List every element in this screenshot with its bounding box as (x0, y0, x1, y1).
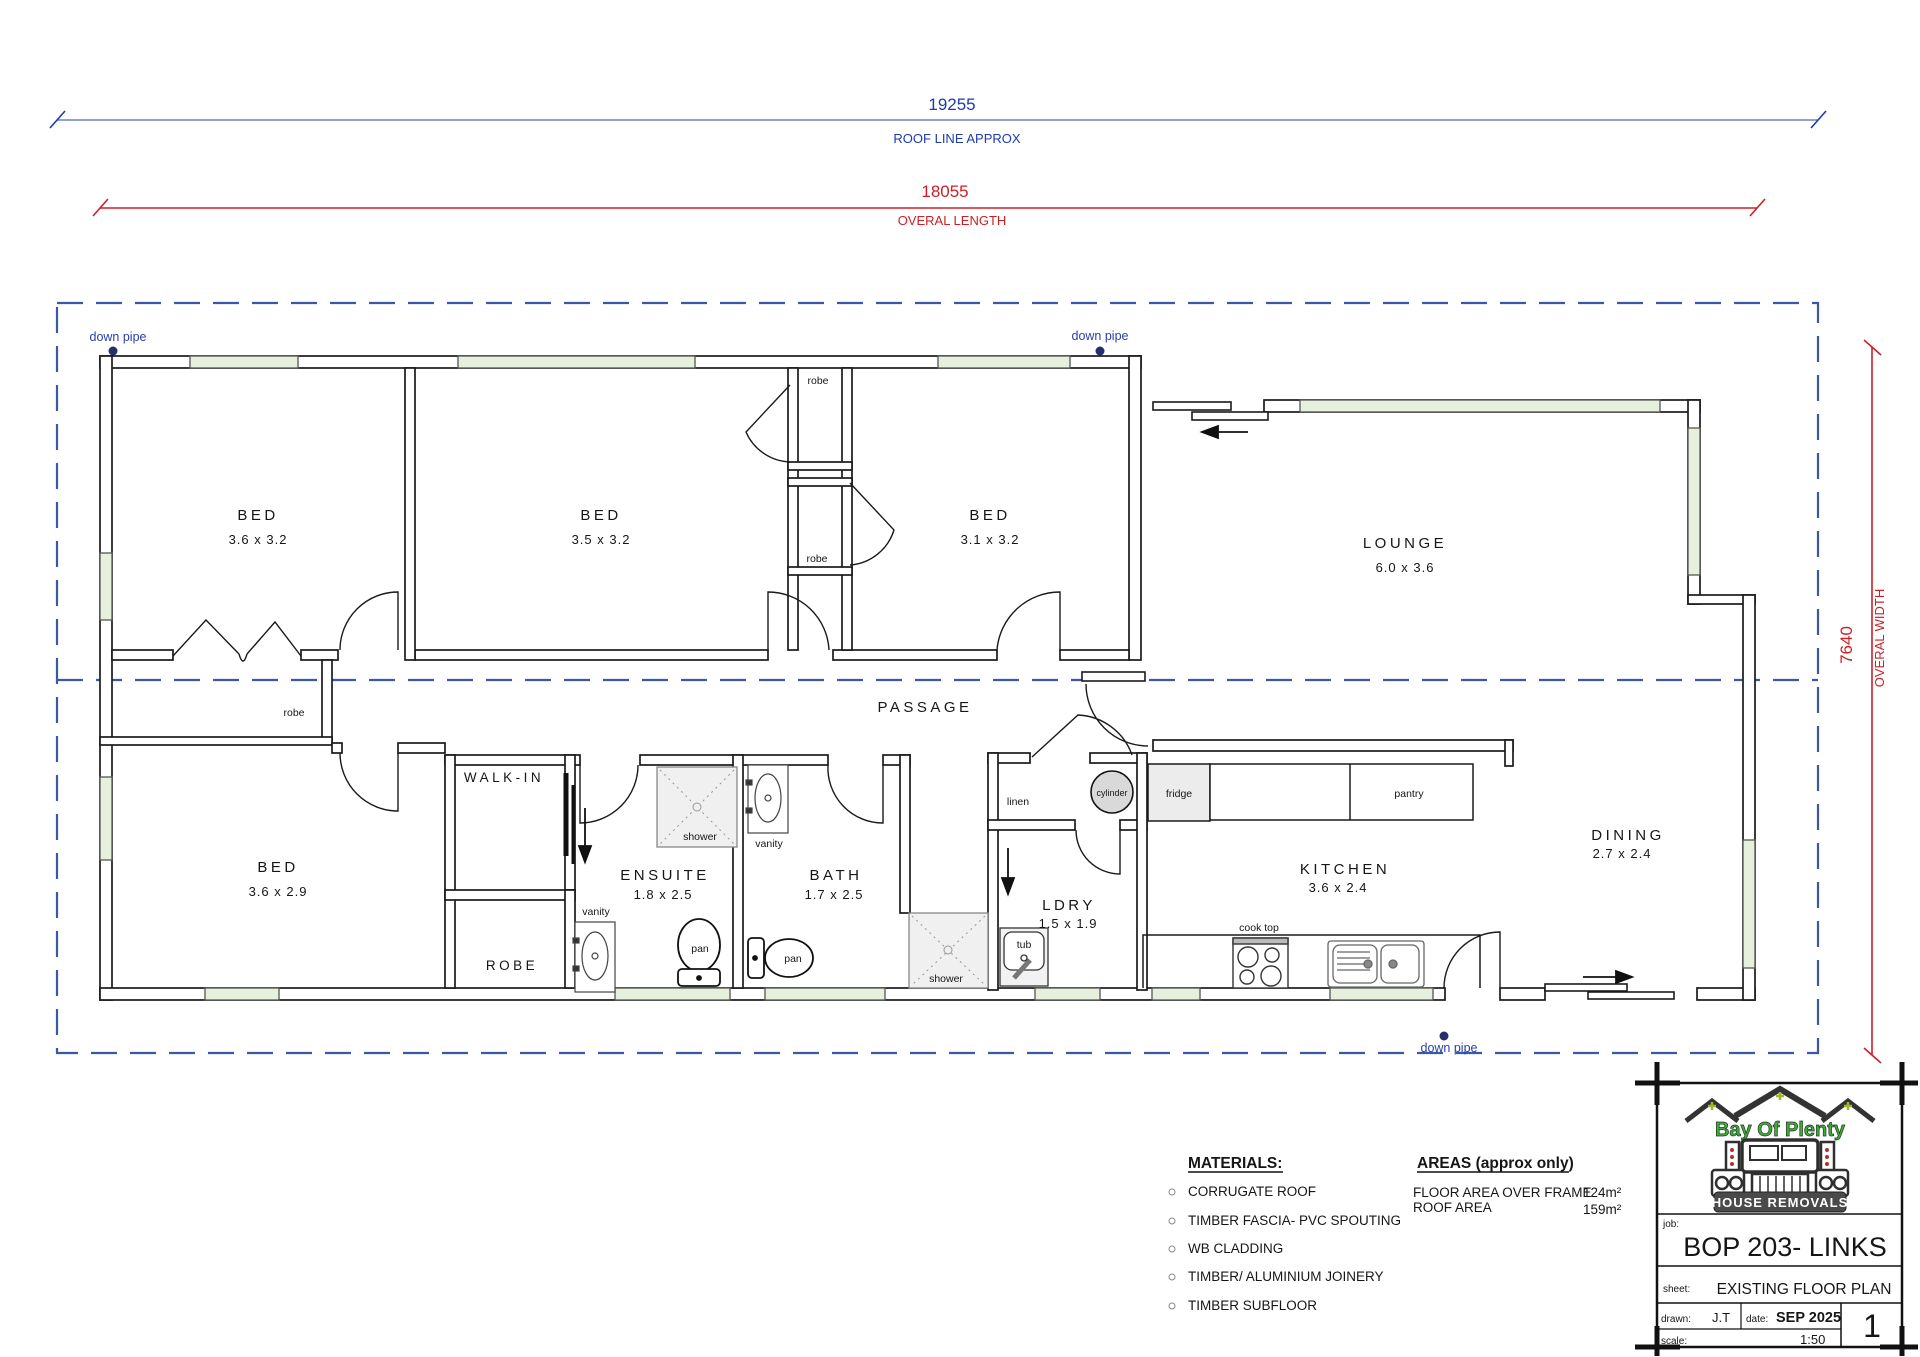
bed2-name: BED (580, 507, 621, 524)
bed3-name: BED (969, 507, 1010, 524)
kitchen-name: KITCHEN (1300, 861, 1390, 878)
down-pipe-label: down pipe (1421, 1041, 1478, 1055)
overall-width-dimension (1864, 340, 1881, 1063)
window (938, 356, 1070, 368)
walls (100, 356, 1755, 1000)
robe-label: robe (806, 553, 827, 565)
door (1444, 932, 1500, 988)
arrow-left-icon (1202, 426, 1218, 438)
bifold-door (247, 622, 301, 656)
robe-label: robe (807, 375, 828, 387)
area-row-label: ROOF AREA (1413, 1200, 1492, 1215)
overall-length-value: 18055 (921, 182, 968, 201)
door (340, 753, 398, 811)
dining-dims: 2.7 x 2.4 (1593, 846, 1652, 861)
window (100, 777, 112, 860)
kitchen-sink (1328, 941, 1424, 987)
robe-label: robe (283, 707, 304, 719)
overall-width-label: OVERAL WIDTH (1872, 589, 1887, 687)
title-block: Bay Of Plenty HOUSE (1635, 1062, 1918, 1356)
overall-length-label: OVERAL LENGTH (898, 213, 1007, 228)
door (1076, 830, 1120, 874)
door (340, 592, 398, 650)
fridge-label: fridge (1166, 788, 1192, 800)
down-pipe-dot (1096, 347, 1105, 356)
robe-door (746, 385, 790, 462)
pan-label: pan (784, 953, 802, 965)
page-number: 1 (1863, 1308, 1881, 1344)
cook-top (1233, 938, 1288, 988)
sheet-value: EXISTING FLOOR PLAN (1717, 1281, 1892, 1298)
bed3-dims: 3.1 x 3.2 (961, 532, 1020, 547)
walk-in-name: WALK-IN (464, 770, 544, 785)
overall-width-value: 7640 (1837, 626, 1856, 664)
logo-truck-icon (1712, 1140, 1848, 1196)
down-pipe-dot (109, 347, 118, 356)
drawn-label: drawn: (1661, 1314, 1691, 1325)
roof-line-dimension-value: 19255 (928, 95, 975, 114)
window (1035, 988, 1100, 1000)
window (190, 356, 298, 368)
door (997, 592, 1060, 650)
window (1152, 988, 1200, 1000)
window (1300, 400, 1660, 412)
dining-name: DINING (1591, 827, 1665, 844)
down-pipe-label: down pipe (1072, 329, 1129, 343)
door (1086, 684, 1148, 746)
bullet-icon (1169, 1218, 1175, 1224)
materials-item: TIMBER/ ALUMINIUM JOINERY (1188, 1269, 1384, 1284)
bifold-door (239, 654, 247, 661)
window (1743, 840, 1755, 968)
bath-dims: 1.7 x 2.5 (805, 887, 864, 902)
door (580, 765, 638, 823)
bed1-name: BED (237, 507, 278, 524)
bullet-icon (1169, 1274, 1175, 1280)
window (458, 356, 695, 368)
pan-label: pan (691, 943, 709, 955)
areas-title: AREAS (approx only) (1417, 1155, 1574, 1172)
slider-panel (1082, 672, 1145, 681)
areas-section: AREAS (approx only) FLOOR AREA OVER FRAM… (1413, 1155, 1622, 1217)
job-label: job: (1662, 1219, 1679, 1230)
materials-item: WB CLADDING (1188, 1241, 1283, 1256)
window (765, 988, 885, 1000)
date-value: SEP 2025 (1776, 1310, 1841, 1326)
materials-item: CORRUGATE ROOF (1188, 1184, 1316, 1199)
kitchen-upper-bench (1148, 764, 1473, 821)
window (100, 553, 112, 620)
floor-plan-sheet: 19255 ROOF LINE APPROX 18055 OVERAL LENG… (0, 0, 1920, 1357)
scale-label: scale: (1661, 1336, 1687, 1347)
robe-door (850, 483, 894, 565)
bed2-dims: 3.5 x 3.2 (572, 532, 631, 547)
ensuite-name: ENSUITE (620, 867, 710, 884)
materials-section: MATERIALS: CORRUGATE ROOF TIMBER FASCIA-… (1169, 1155, 1401, 1313)
job-value: BOP 203- LINKS (1683, 1232, 1887, 1262)
slider-panel (1192, 412, 1268, 420)
down-pipe-label: down pipe (90, 330, 147, 344)
materials-item: TIMBER SUBFLOOR (1188, 1298, 1317, 1313)
shower-label: shower (929, 973, 963, 985)
tub-label: tub (1017, 939, 1032, 951)
arrow-right-icon (1616, 971, 1632, 983)
down-pipe-dot (1440, 1032, 1449, 1041)
window (205, 988, 279, 1000)
materials-item: TIMBER FASCIA- PVC SPOUTING (1188, 1213, 1401, 1228)
bullet-icon (1169, 1189, 1175, 1195)
ldry-dims: 1.5 x 1.9 (1039, 916, 1098, 931)
cook-top-label: cook top (1239, 922, 1279, 934)
pantry-label: pantry (1394, 788, 1424, 800)
arrow-down-icon (1002, 878, 1014, 894)
bath-vanity (746, 765, 788, 833)
bed4-name: BED (257, 859, 298, 876)
vanity-label: vanity (582, 906, 610, 918)
window (1330, 988, 1433, 1000)
vanity-label: vanity (755, 838, 783, 850)
roof-line-dimension-label: ROOF LINE APPROX (893, 131, 1020, 146)
passage-name: PASSAGE (877, 699, 972, 716)
door (828, 765, 883, 823)
door (1032, 715, 1132, 757)
robe-room-name: ROBE (486, 958, 538, 973)
arrow-down-icon (579, 846, 591, 862)
logo-company-name: Bay Of Plenty (1715, 1119, 1846, 1141)
ensuite-vanity (573, 922, 615, 992)
bifold-door (173, 620, 239, 656)
drawn-value: J.T (1712, 1310, 1730, 1325)
area-row-label: FLOOR AREA OVER FRAME (1413, 1185, 1592, 1200)
windows (100, 356, 1755, 1000)
slider-panel (1545, 984, 1627, 991)
materials-title: MATERIALS: (1188, 1155, 1282, 1172)
bullet-icon (1169, 1246, 1175, 1252)
window (615, 988, 730, 1000)
date-label: date: (1746, 1314, 1768, 1325)
area-row-value: 124m² (1583, 1185, 1622, 1200)
area-row-value: 159m² (1583, 1202, 1622, 1217)
cylinder-label: cylinder (1096, 788, 1127, 798)
lounge-dims: 6.0 x 3.6 (1376, 560, 1435, 575)
window (1688, 428, 1700, 575)
bath-name: BATH (810, 867, 863, 884)
lounge-name: LOUNGE (1363, 535, 1447, 552)
bed1-dims: 3.6 x 3.2 (229, 532, 288, 547)
bullet-icon (1169, 1303, 1175, 1309)
kitchen-dims: 3.6 x 2.4 (1309, 880, 1368, 895)
bed4-dims: 3.6 x 2.9 (249, 884, 308, 899)
ensuite-dims: 1.8 x 2.5 (634, 887, 693, 902)
sliding-doors (1082, 402, 1674, 999)
slider-panel (1588, 992, 1674, 999)
laundry-tub (1000, 928, 1048, 986)
sheet-label: sheet: (1663, 1284, 1690, 1295)
scale-value: 1:50 (1800, 1332, 1825, 1347)
logo-tagline: HOUSE REMOVALS (1712, 1195, 1849, 1210)
ldry-name: LDRY (1042, 897, 1096, 914)
bath-toilet (748, 938, 813, 978)
floor-plan-drawing: 19255 ROOF LINE APPROX 18055 OVERAL LENG… (0, 0, 1920, 1357)
slider-panel (1153, 402, 1231, 410)
shower-label: shower (683, 831, 717, 843)
linen-label: linen (1007, 796, 1029, 808)
kitchen-lower-bench (1143, 935, 1480, 988)
